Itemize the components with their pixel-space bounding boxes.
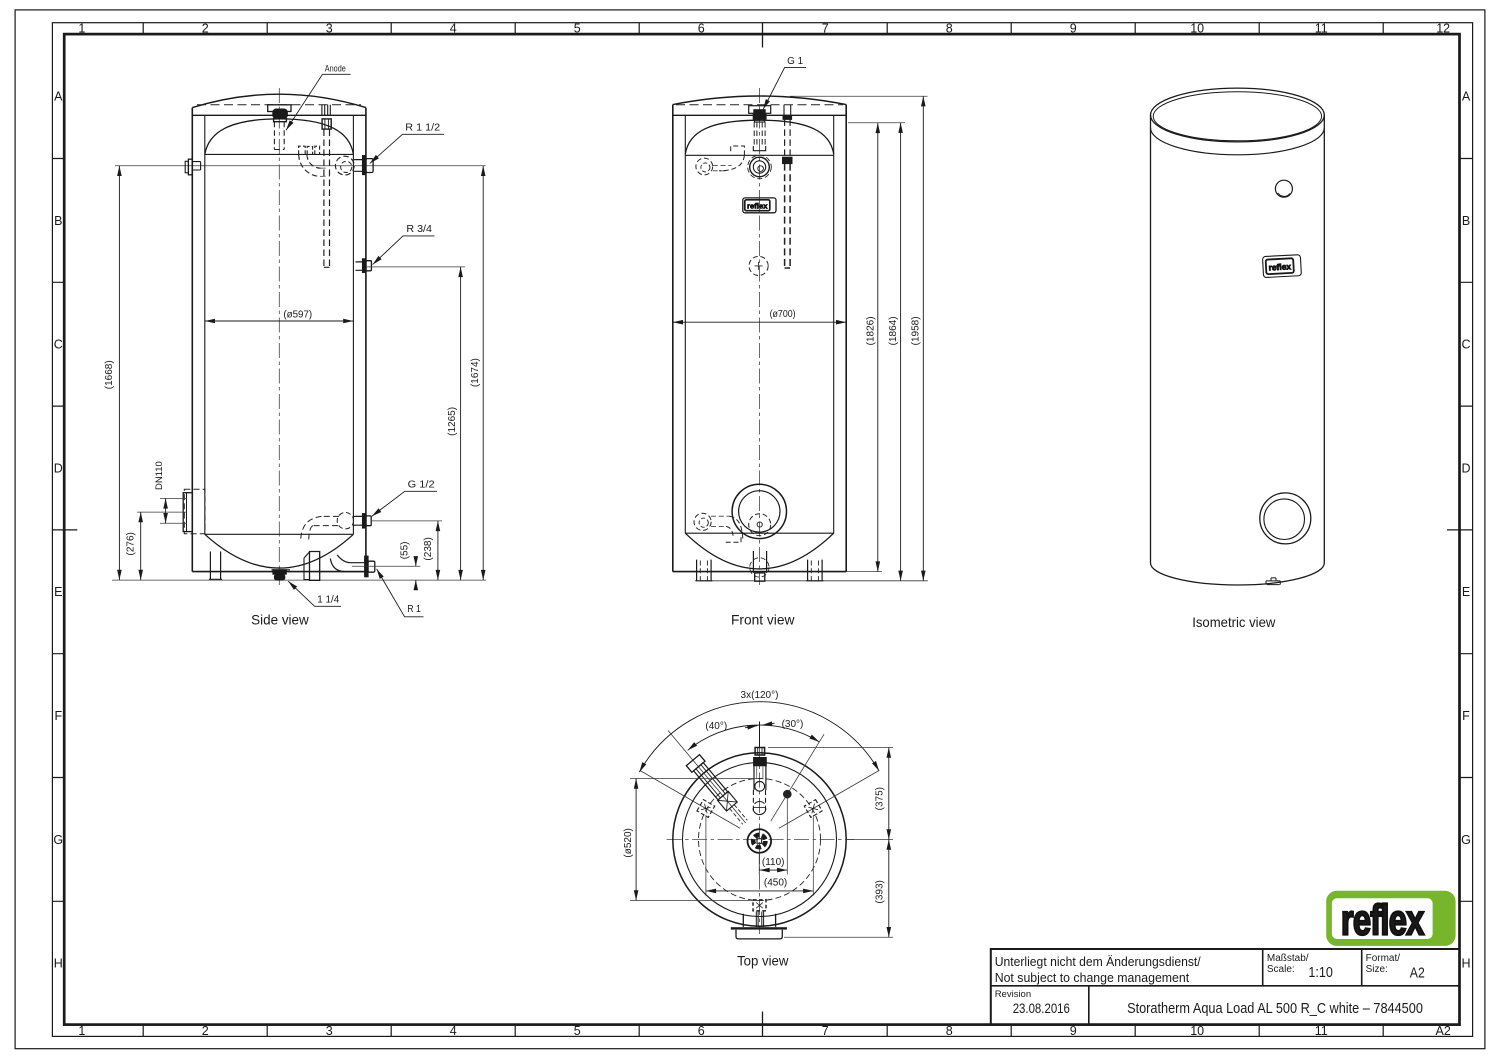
svg-text:23.08.2016: 23.08.2016 xyxy=(1013,1000,1070,1016)
svg-text:Scale:: Scale: xyxy=(1267,964,1295,975)
svg-text:(ø597): (ø597) xyxy=(283,309,312,320)
svg-text:(238): (238) xyxy=(423,537,434,560)
svg-text:7: 7 xyxy=(822,22,829,36)
svg-text:(276): (276) xyxy=(125,532,136,555)
svg-text:B: B xyxy=(54,214,62,228)
svg-text:G: G xyxy=(1461,833,1471,847)
svg-text:(ø520): (ø520) xyxy=(623,828,634,857)
svg-text:2: 2 xyxy=(202,1024,209,1038)
svg-text:Isometric view: Isometric view xyxy=(1192,614,1276,630)
svg-text:DN110: DN110 xyxy=(154,461,165,490)
svg-text:(1674): (1674) xyxy=(470,358,481,387)
svg-text:4: 4 xyxy=(450,1024,457,1038)
svg-text:Revision: Revision xyxy=(995,989,1031,1000)
svg-text:Format/: Format/ xyxy=(1366,953,1401,964)
svg-text:Front view: Front view xyxy=(731,612,795,628)
svg-text:H: H xyxy=(1461,956,1470,970)
svg-text:6: 6 xyxy=(698,22,705,36)
svg-text:R 1 1/2: R 1 1/2 xyxy=(405,122,440,133)
svg-text:reflex: reflex xyxy=(747,202,768,211)
svg-text:11: 11 xyxy=(1315,1024,1328,1038)
svg-text:10: 10 xyxy=(1190,1024,1204,1038)
svg-text:F: F xyxy=(54,709,62,723)
svg-text:(1826): (1826) xyxy=(865,316,876,345)
svg-text:G 1/2: G 1/2 xyxy=(408,479,435,490)
svg-text:Maßstab/: Maßstab/ xyxy=(1267,953,1309,964)
svg-text:(55): (55) xyxy=(399,542,410,560)
svg-text:reflex: reflex xyxy=(1341,897,1425,945)
svg-text:A2: A2 xyxy=(1436,1024,1451,1038)
svg-text:Side view: Side view xyxy=(251,611,310,627)
svg-text:7: 7 xyxy=(822,1024,829,1038)
svg-text:(1668): (1668) xyxy=(104,360,115,389)
svg-text:1 1/4: 1 1/4 xyxy=(317,595,339,606)
svg-text:G 1: G 1 xyxy=(787,56,803,67)
svg-text:D: D xyxy=(1461,461,1470,475)
svg-text:4: 4 xyxy=(450,22,457,36)
svg-text:(30°): (30°) xyxy=(782,719,804,730)
svg-text:E: E xyxy=(54,585,62,599)
svg-text:10: 10 xyxy=(1190,22,1204,36)
svg-text:A: A xyxy=(1462,90,1471,104)
svg-text:C: C xyxy=(1461,338,1470,352)
svg-text:1:10: 1:10 xyxy=(1308,965,1333,981)
svg-text:G: G xyxy=(53,833,63,847)
svg-text:2: 2 xyxy=(202,22,209,36)
svg-text:A: A xyxy=(54,90,63,104)
svg-text:R 1: R 1 xyxy=(407,604,421,615)
svg-text:(1958): (1958) xyxy=(911,316,922,345)
svg-text:8: 8 xyxy=(946,1024,953,1038)
svg-text:Not subject to change manageme: Not subject to change management xyxy=(995,970,1190,985)
svg-text:5: 5 xyxy=(574,22,581,36)
svg-text:6: 6 xyxy=(698,1024,705,1038)
svg-text:Unterliegt nicht dem Änderungs: Unterliegt nicht dem Änderungsdienst/ xyxy=(995,954,1201,969)
svg-text:1: 1 xyxy=(78,1024,85,1038)
svg-text:1: 1 xyxy=(78,22,85,36)
svg-text:(40°): (40°) xyxy=(705,721,727,732)
svg-text:8: 8 xyxy=(946,22,953,36)
svg-text:12: 12 xyxy=(1436,22,1450,36)
svg-text:(1864): (1864) xyxy=(888,316,899,345)
svg-text:Size:: Size: xyxy=(1366,964,1388,975)
svg-text:Anode: Anode xyxy=(325,64,346,75)
svg-text:(450): (450) xyxy=(764,878,787,889)
svg-text:B: B xyxy=(1462,214,1470,228)
svg-text:F: F xyxy=(1462,709,1470,723)
svg-text:R 3/4: R 3/4 xyxy=(406,224,432,235)
svg-text:(393): (393) xyxy=(875,880,886,903)
svg-text:(110): (110) xyxy=(762,857,785,868)
svg-text:Storatherm Aqua Load AL 500 R_: Storatherm Aqua Load AL 500 R_C white – … xyxy=(1127,1001,1423,1017)
svg-text:(375): (375) xyxy=(875,787,886,810)
svg-text:(ø700): (ø700) xyxy=(770,309,796,320)
svg-text:11: 11 xyxy=(1315,22,1328,36)
svg-text:Top view: Top view xyxy=(737,953,789,969)
svg-text:9: 9 xyxy=(1070,1024,1077,1038)
svg-text:D: D xyxy=(54,461,63,475)
svg-text:A2: A2 xyxy=(1410,966,1425,982)
svg-text:C: C xyxy=(54,338,63,352)
svg-text:5: 5 xyxy=(574,1024,581,1038)
svg-text:E: E xyxy=(1462,585,1470,599)
svg-text:9: 9 xyxy=(1070,22,1077,36)
svg-text:H: H xyxy=(54,956,63,970)
svg-text:3: 3 xyxy=(326,22,333,36)
svg-text:(1265): (1265) xyxy=(447,407,458,436)
svg-text:reflex: reflex xyxy=(1268,261,1291,272)
svg-text:3x(120°): 3x(120°) xyxy=(741,690,779,701)
svg-text:3: 3 xyxy=(326,1024,333,1038)
